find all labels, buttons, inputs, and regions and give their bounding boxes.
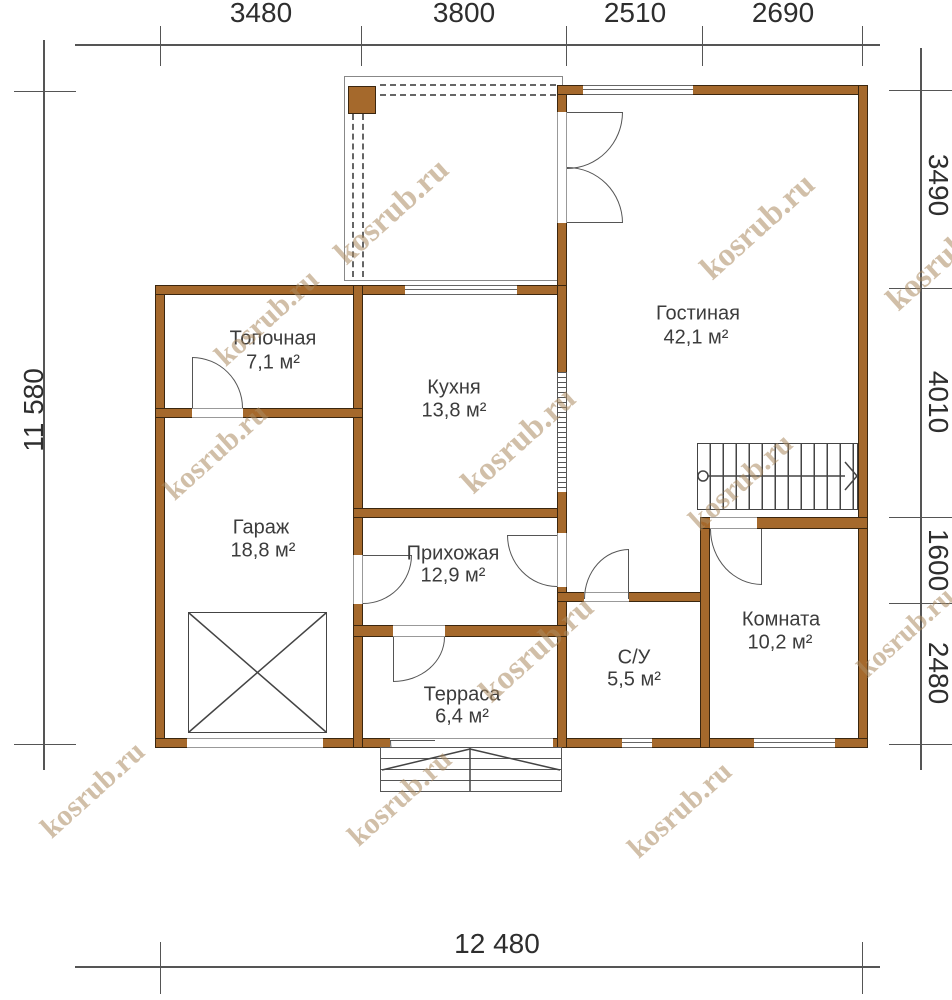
garage-x-box — [188, 612, 327, 733]
room-area: 6,4 м² — [435, 706, 489, 729]
watermark: kosrub.ru — [34, 735, 152, 846]
wall — [700, 517, 710, 748]
dimension-line — [702, 26, 703, 66]
dimension-label: 2690 — [752, 0, 814, 29]
window — [754, 738, 835, 748]
dimension-label: 2480 — [922, 642, 952, 704]
wall-opening — [187, 738, 323, 748]
dimension-label: 4010 — [922, 371, 952, 433]
dimension-line — [889, 288, 952, 289]
porch-post — [348, 86, 376, 114]
wall — [557, 285, 567, 748]
floor-plan: 348038002510269012 48011 580349040101600… — [0, 0, 952, 1000]
room-name: Топочная — [230, 328, 317, 351]
room-name: С/У — [618, 647, 651, 670]
porch-dashed-line — [380, 84, 556, 86]
room-name: Комната — [742, 609, 820, 632]
wall — [353, 508, 567, 518]
dimension-line — [889, 90, 952, 91]
wall — [155, 285, 165, 748]
dimension-label: 3480 — [230, 0, 292, 29]
entry-steps — [380, 747, 562, 792]
dimension-line — [160, 942, 161, 994]
wall-opening — [192, 408, 243, 418]
room-name: Прихожая — [407, 543, 500, 566]
watermark: kosrub.ru — [621, 755, 739, 866]
room-area: 7,1 м² — [246, 352, 300, 375]
wall — [858, 85, 868, 748]
wall-opening — [393, 625, 445, 637]
door-swing — [584, 549, 629, 599]
door-swing — [507, 535, 557, 587]
wall-opening — [353, 555, 363, 604]
porch-dashed-line — [380, 94, 556, 96]
dimension-line — [75, 966, 880, 968]
stairs — [697, 443, 858, 510]
kitchen-hatch-opening — [557, 372, 567, 492]
dimension-label: 1600 — [922, 529, 952, 591]
dimension-line — [889, 744, 952, 745]
window — [583, 85, 693, 95]
dimension-line — [75, 44, 880, 46]
wall-opening — [710, 517, 757, 529]
wall — [557, 592, 710, 602]
door-swing — [710, 529, 762, 585]
room-area: 18,8 м² — [231, 540, 296, 563]
door-swing — [393, 637, 445, 682]
dimension-line — [14, 91, 76, 92]
room-area: 13,8 м² — [422, 400, 487, 423]
room-name: Кухня — [427, 377, 481, 400]
dimension-line — [862, 942, 863, 994]
door-swing — [192, 357, 243, 408]
porch-dashed-line — [362, 114, 364, 277]
door-swing — [363, 555, 412, 604]
dimension-label: 11 580 — [18, 368, 50, 452]
window — [405, 285, 517, 295]
room-area: 42,1 м² — [664, 327, 729, 350]
dimension-line — [160, 26, 161, 66]
wall-opening — [557, 112, 567, 223]
dimension-line — [889, 517, 952, 518]
dimension-label: 2510 — [604, 0, 666, 29]
wall — [353, 625, 567, 637]
dimension-label: 3800 — [433, 0, 495, 29]
dimension-line — [566, 26, 567, 66]
window — [622, 738, 652, 748]
porch-outline — [344, 76, 563, 281]
room-area: 5,5 м² — [607, 669, 661, 692]
wall — [155, 408, 363, 418]
dimension-label: 12 480 — [454, 928, 540, 960]
dimension-line — [862, 26, 863, 66]
dimension-line — [14, 744, 76, 745]
dimension-label: 3490 — [922, 154, 952, 216]
watermark: kosrub.ru — [693, 166, 822, 287]
porch-dashed-line — [352, 114, 354, 277]
room-area: 10,2 м² — [748, 632, 813, 655]
room-name: Гостиная — [656, 303, 740, 326]
room-name: Гараж — [233, 517, 289, 540]
door-swing — [567, 112, 623, 169]
dimension-line — [361, 26, 362, 66]
dimension-line — [889, 603, 952, 604]
wall-opening — [557, 533, 567, 587]
room-name: Терраса — [424, 684, 501, 707]
room-area: 12,9 м² — [421, 565, 486, 588]
door-swing — [567, 167, 623, 223]
